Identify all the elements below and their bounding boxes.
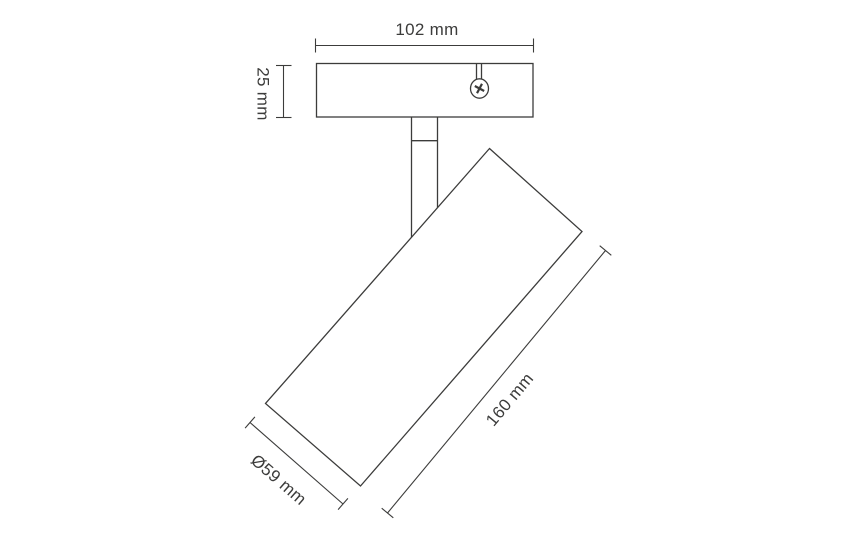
lamp-body — [266, 149, 583, 487]
dim-160-label: 160 mm — [482, 369, 537, 430]
dimension-bracket-height: 25 mm — [254, 66, 292, 121]
mounting-bracket — [317, 64, 534, 118]
dim-102-label: 102 mm — [395, 20, 458, 39]
dimension-bracket-width: 102 mm — [316, 20, 534, 53]
dim-160-tick-top — [600, 246, 612, 256]
spotlight-dimension-drawing: 102 mm 25 mm 160 mm Ø59 mm — [0, 0, 856, 540]
dim-59-tick-top — [245, 417, 255, 428]
dimension-drawing-canvas: 102 mm 25 mm 160 mm Ø59 mm — [0, 0, 856, 540]
dim-25-label: 25 mm — [254, 67, 273, 120]
dim-160-tick-bottom — [382, 508, 394, 518]
dim-59-tick-bottom — [338, 498, 348, 509]
dim-59-label: Ø59 mm — [247, 451, 310, 509]
